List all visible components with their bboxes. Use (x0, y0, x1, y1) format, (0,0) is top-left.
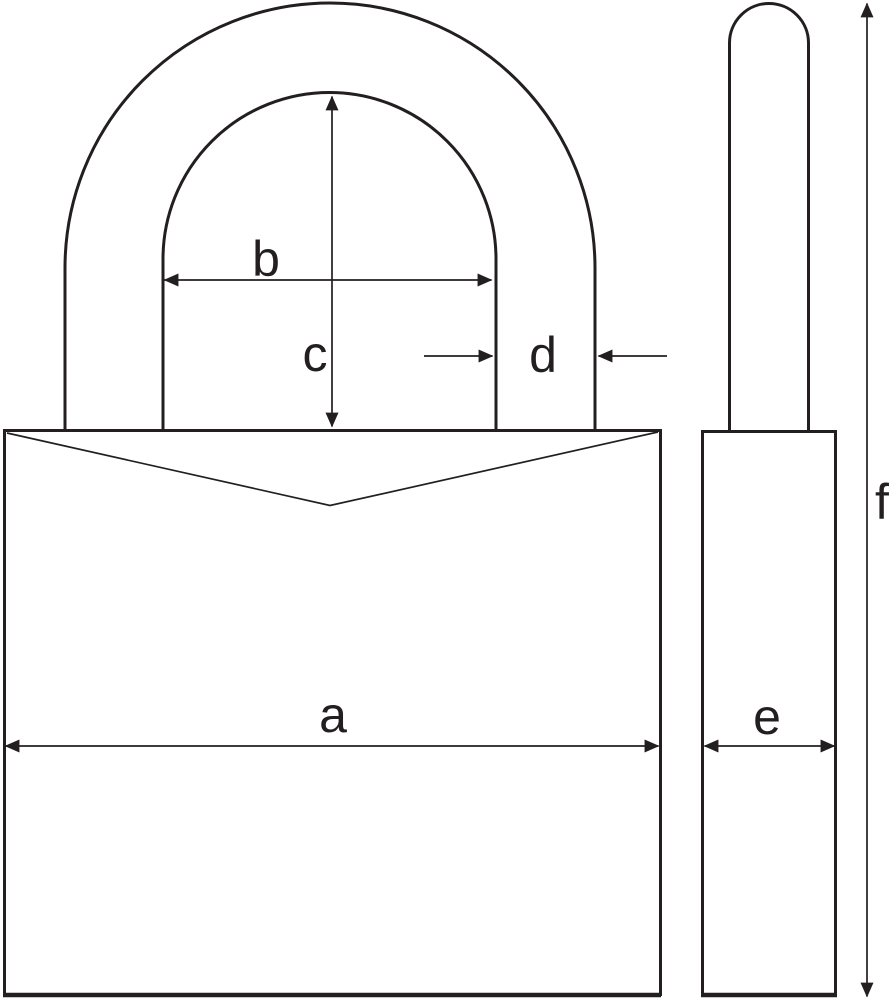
dimension-e-label: e (753, 689, 781, 745)
dimension-c-label: c (303, 326, 328, 382)
side-view: e f (701, 4, 889, 997)
dimension-f-label: f (875, 474, 889, 530)
body-top-chamfer (7, 432, 658, 506)
dimension-a-label: a (319, 687, 347, 743)
dimension-f: f (867, 4, 889, 997)
shackle-inner-outline (163, 93, 496, 431)
dimension-b: b (165, 231, 492, 287)
dimension-d: d (424, 327, 667, 383)
shackle-outer-outline (65, 3, 595, 430)
front-view: b c d a (3, 3, 667, 995)
dimension-e: e (705, 689, 835, 746)
padlock-dimension-diagram: b c d a (0, 0, 889, 1000)
dimension-b-label: b (252, 231, 280, 287)
diagram-svg: b c d a (0, 0, 889, 1000)
shackle-side-outline (730, 4, 809, 431)
dimension-c: c (303, 97, 333, 427)
dimension-a: a (6, 687, 659, 746)
dimension-d-label: d (529, 327, 557, 383)
